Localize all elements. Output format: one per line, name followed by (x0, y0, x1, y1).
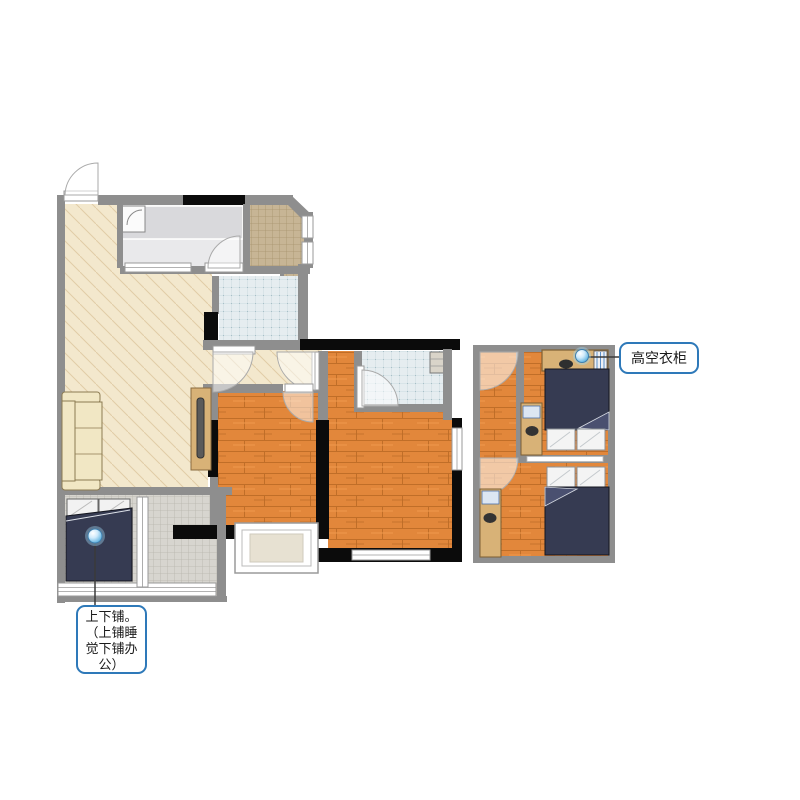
wall (217, 495, 226, 602)
wardrobe-callout-label[interactable]: 高空衣柜 (619, 342, 699, 374)
sliding-door[interactable] (137, 497, 148, 587)
bunk-callout-text-line: （上铺睡 (78, 625, 145, 641)
bed-b[interactable] (545, 467, 609, 555)
desk-a[interactable] (521, 403, 542, 455)
wall (117, 204, 123, 268)
bay-window (235, 523, 318, 573)
main-floorplan (57, 163, 462, 603)
wall-structural (183, 195, 245, 205)
bunk-bed-marker-icon[interactable] (85, 526, 105, 546)
kitchen-pass-window (125, 263, 191, 272)
wall (57, 596, 227, 602)
wall (210, 477, 218, 527)
detail-floorplan (473, 345, 615, 563)
bathroom1-floor (219, 276, 298, 340)
wall-structural (300, 339, 460, 350)
wardrobe-item (559, 360, 573, 369)
bunk-callout-text-line: 觉下铺办 (78, 641, 145, 657)
wall (212, 276, 219, 314)
wall (98, 195, 183, 205)
wall-structural (316, 420, 329, 530)
bunk-callout-label[interactable]: 上下铺。 （上铺睡 觉下铺办 公） (76, 605, 147, 674)
floorplan-svg (0, 0, 800, 800)
sofa[interactable] (62, 392, 102, 490)
tv (197, 398, 204, 458)
wardrobe-callout-text: 高空衣柜 (631, 348, 687, 368)
pass-window (527, 457, 603, 462)
wall (473, 345, 480, 563)
bed-a[interactable] (545, 369, 609, 450)
wardrobe-marker-icon[interactable] (573, 347, 591, 365)
wall (245, 195, 293, 205)
floorplan-canvas: 高空衣柜 上下铺。 （上铺睡 觉下铺办 公） (0, 0, 800, 800)
bunk-callout-text-line: 公） (78, 657, 145, 673)
tv-cabinet[interactable] (191, 388, 211, 470)
wall (298, 264, 308, 344)
entry-door[interactable] (64, 163, 98, 201)
cabinet-b[interactable] (480, 489, 501, 557)
wall (243, 204, 250, 268)
bunk-callout-text-line: 上下铺。 (78, 609, 145, 625)
